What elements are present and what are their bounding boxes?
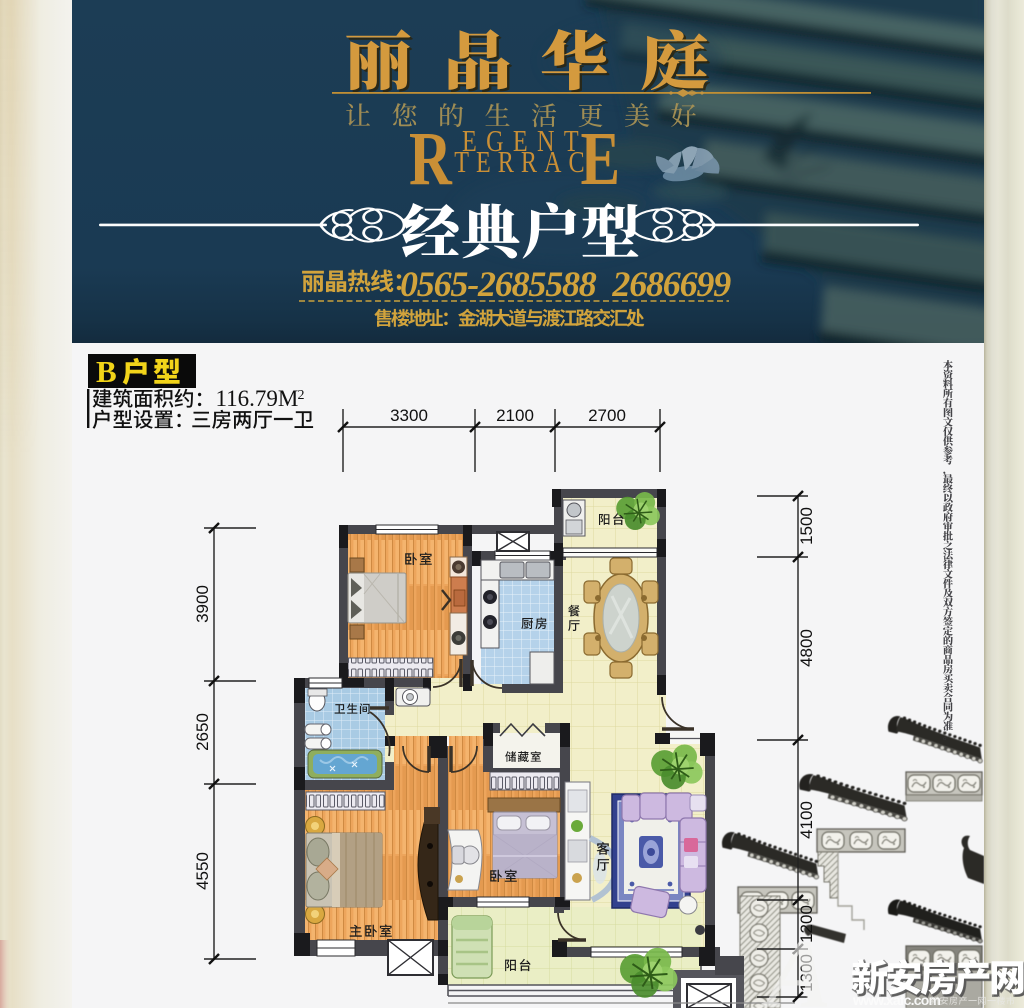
svg-text:www.xafc.com: www.xafc.com (852, 992, 940, 1008)
svg-text:A: A (760, 921, 831, 1008)
